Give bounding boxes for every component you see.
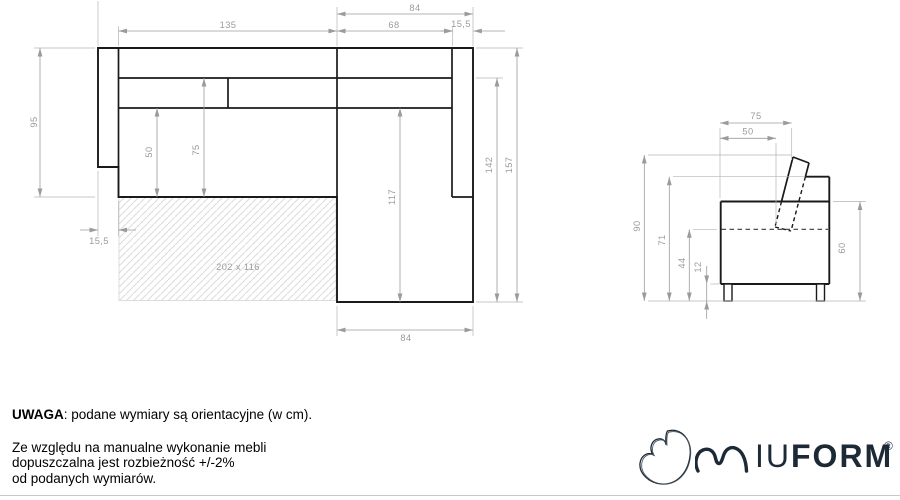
side-view-dimension-lines [644,123,860,319]
logo-wordmark-bold: FORM [791,438,893,474]
side-view: 75 50 90 71 44 12 60 [632,111,866,319]
tolerance-line-1: Ze względu na manualne wykonanie mebli [12,440,312,456]
dim-seat-depth-outer: 75 [191,144,201,155]
dim-total-height: 90 [632,220,642,231]
dim-frame-height: 71 [657,234,667,245]
tolerance-line-2: dopuszczalna jest rozbieżność +/-2% [12,455,312,471]
miuform-m-glyph [695,445,751,474]
dim-seat-width: 135 [220,20,237,30]
warning-line: UWAGA: podane wymiary są orientacyjne (w… [12,407,312,423]
top-view: 84 135 68 15,5 95 15,5 50 75 117 142 157… [29,1,523,343]
registered-trademark-symbol: ® [884,439,893,453]
notes-block: UWAGA: podane wymiary są orientacyjne (w… [12,407,312,486]
dim-backrest-seat-depth: 50 [742,127,753,137]
sleeping-area-hatch [119,198,336,301]
sofa-internal-lines [119,48,474,197]
logo-wordmark: IUFORM [755,440,893,472]
warning-label: UWAGA [12,407,64,422]
side-body-outline [721,177,830,284]
dim-body-depth: 95 [29,116,39,127]
dim-seat-height: 44 [677,257,687,268]
dim-side-height: 60 [837,242,847,253]
dim-seat-depth-inner: 50 [144,146,154,157]
bottom-separator-line [0,495,900,496]
logo-wordmark-light: IU [755,438,791,474]
dim-leg-height: 12 [693,261,703,272]
front-leg [724,284,732,301]
warning-text: : podane wymiary są orientacyjne (w cm). [64,407,312,422]
dim-chaise-inner-width: 68 [388,20,399,30]
dim-chaise-inner-length: 117 [387,189,397,205]
dim-backrest-top-depth: 75 [750,111,761,121]
miuform-bean-icon [638,429,693,487]
back-leg [817,284,825,301]
furniture-dimension-sheet: 84 135 68 15,5 95 15,5 50 75 117 142 157… [0,0,900,500]
backrest-cushion [775,157,809,231]
brand-logo: IUFORM ® [638,428,900,490]
dim-chaise-width-top: 84 [409,3,420,13]
dim-chaise-width-bottom: 84 [400,333,411,343]
dim-total-length: 157 [504,157,514,174]
tolerance-line-3: od podanych wymiarów. [12,471,312,487]
sleeping-area-label: 202 x 116 [216,262,260,272]
dim-chaise-length: 142 [484,157,494,174]
dim-left-armrest-width: 15,5 [89,236,109,246]
dim-right-armrest-width: 15,5 [451,19,471,29]
side-view-extension-lines [648,128,866,301]
